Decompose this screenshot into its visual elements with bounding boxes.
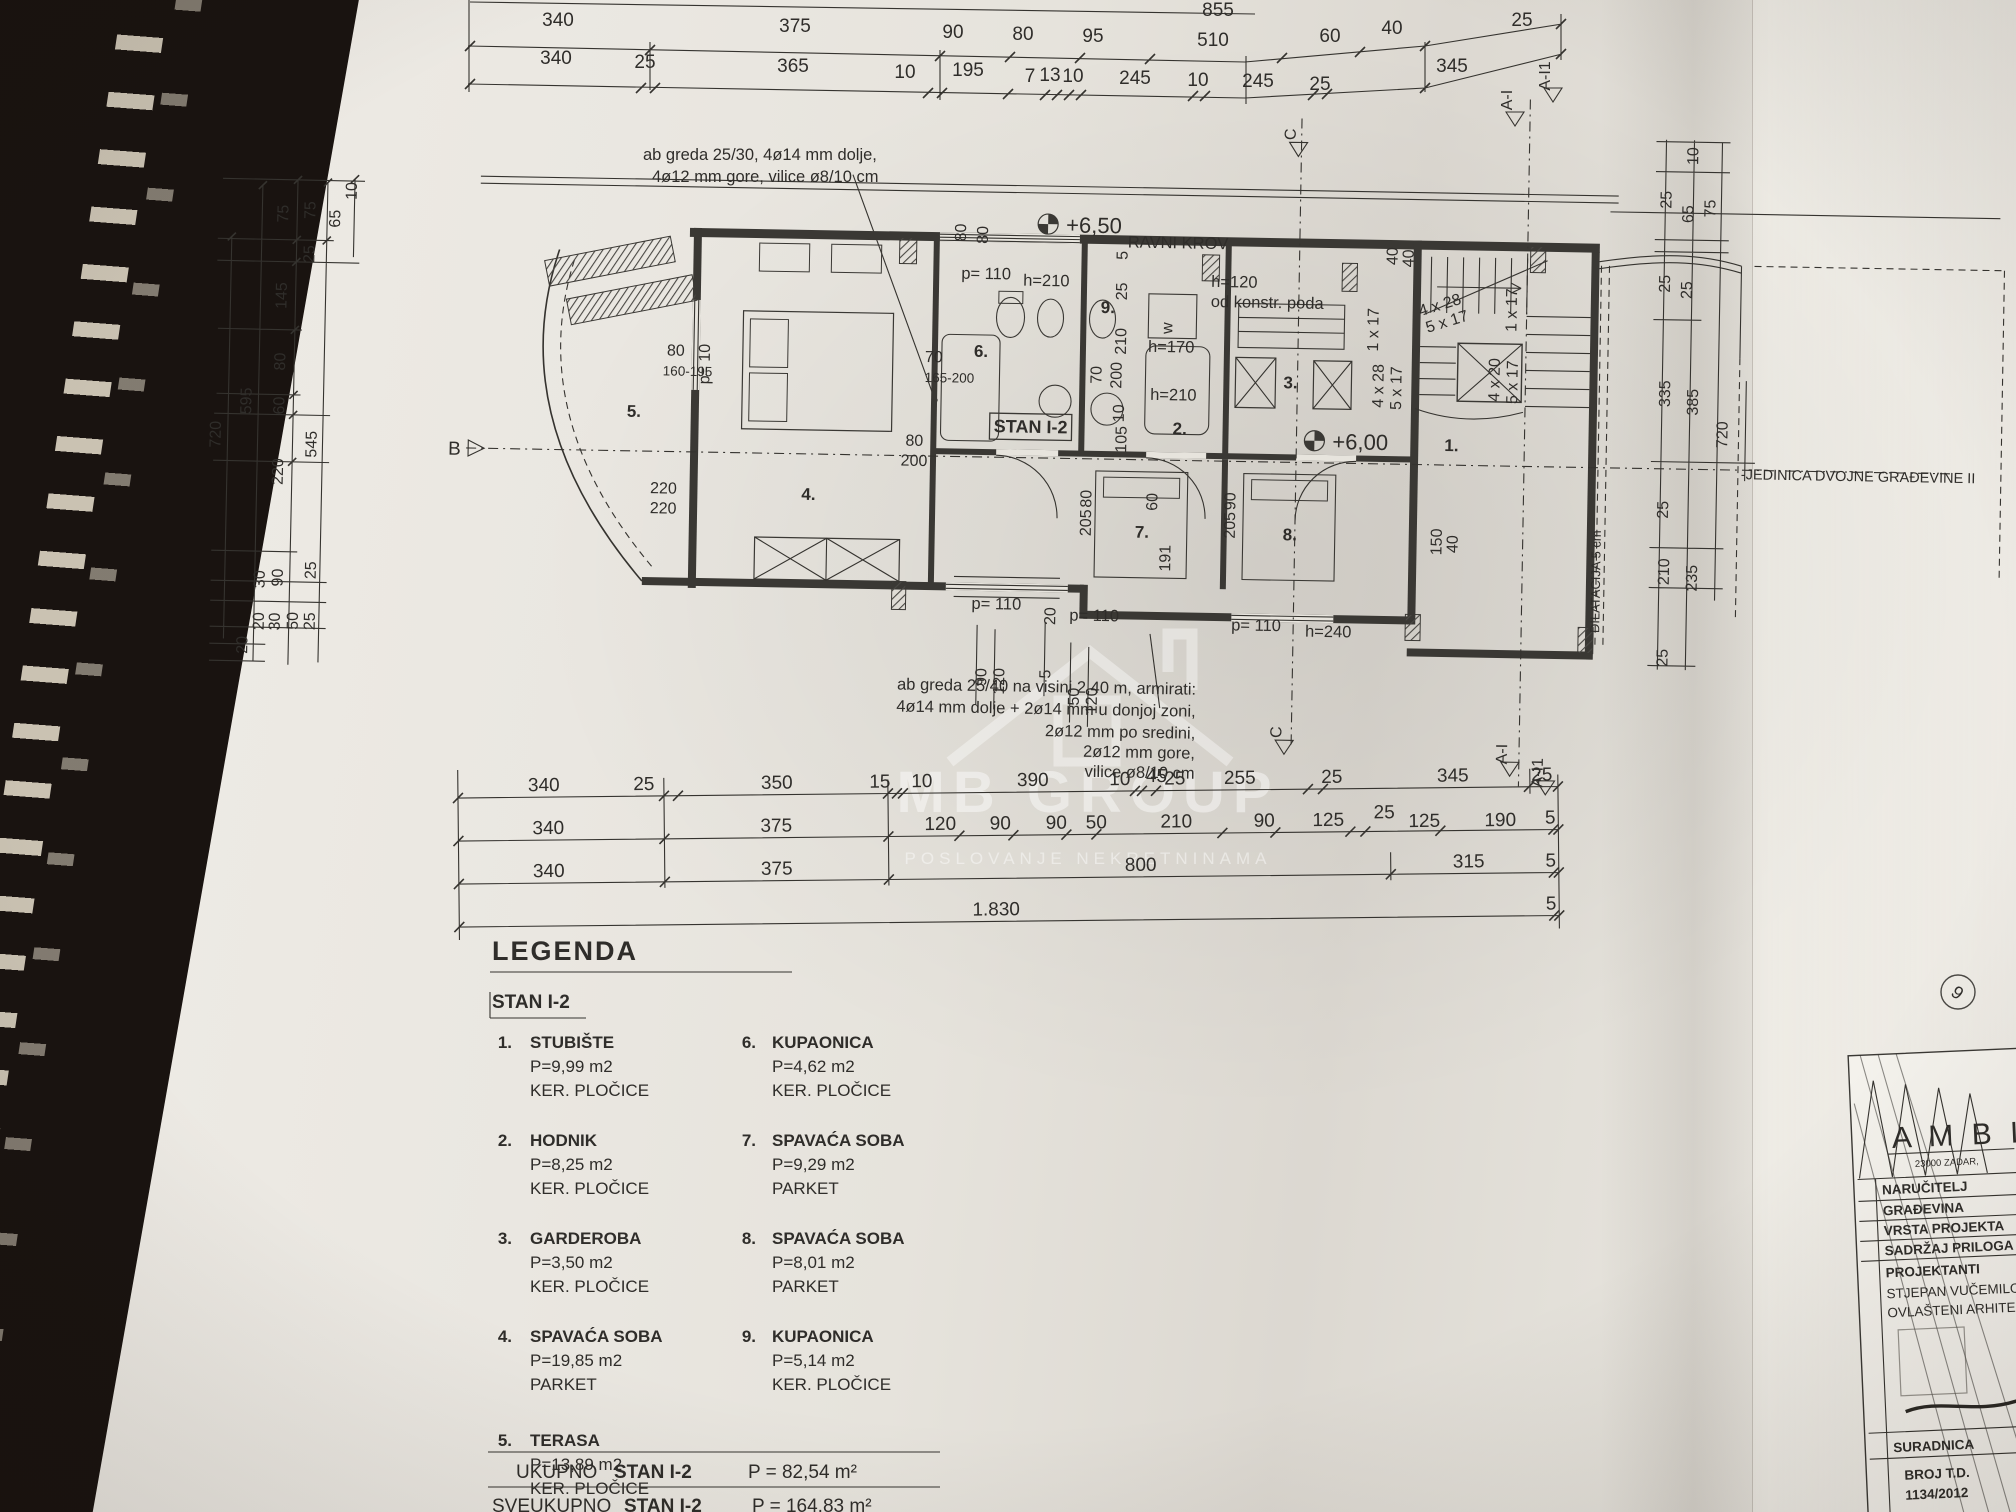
dim: 340 [542, 10, 574, 31]
legend-item-name: SPAVAĆA SOBA [772, 1131, 905, 1150]
dim: 90 [1222, 492, 1239, 510]
dim: 70 [925, 349, 943, 366]
bedroom4-furniture [739, 243, 905, 582]
legend-item-num: 2. [498, 1131, 512, 1150]
room-number-8: 8. [1283, 525, 1298, 544]
dim: 25 [1658, 191, 1675, 209]
dim: 220 [650, 480, 677, 497]
legend-item-finish: KER. PLOČICE [530, 1277, 649, 1296]
dim: 65 [327, 210, 344, 228]
dim: 15 [869, 771, 890, 792]
legend-item-name: KUPAONICA [772, 1327, 874, 1346]
dim: 80 [1012, 24, 1033, 45]
stair-text: 1 x 17 [1503, 288, 1521, 332]
dim: 80 [272, 352, 289, 370]
floor-plan: B C C A-I A-I1 +6,50 +6,00 1. 2. [442, 81, 2007, 803]
dim-line [470, 2, 1255, 14]
dim: 60 [1144, 493, 1161, 511]
door-label: h=240 [1305, 623, 1352, 642]
legend-item-finish: KER. PLOČICE [530, 1081, 649, 1100]
section-line-b [466, 448, 1954, 474]
legend-item-num: 9. [742, 1327, 756, 1346]
legend-item-finish: KER. PLOČICE [530, 1179, 649, 1198]
dim: 90 [270, 568, 287, 586]
leader-line [849, 175, 939, 400]
room-number-5: 5. [627, 402, 642, 421]
apartment-label: STAN I-2 [994, 416, 1068, 437]
dim-lines [209, 176, 365, 666]
dim: 80 [975, 226, 992, 244]
dim: 95 [1082, 26, 1103, 47]
partition [928, 236, 940, 584]
dim: 25 [302, 612, 319, 630]
total-value: P = 82,54 m² [748, 1462, 857, 1483]
dim: 25 [1164, 768, 1185, 789]
dim: 10 [344, 182, 361, 200]
dim: 125 [1408, 811, 1440, 832]
dim: 315 [1453, 851, 1485, 872]
legend-item-finish: KER. PLOČICE [772, 1375, 891, 1394]
parapet-label: h=120 [1211, 273, 1258, 292]
dim: 855 [1202, 0, 1234, 21]
dim: 25 [1654, 649, 1671, 667]
dim: 200 [1108, 362, 1125, 389]
legend-item-num: 1. [498, 1033, 512, 1052]
dim: 375 [779, 16, 811, 37]
dim: 340 [528, 775, 560, 796]
legend-item-area: P=19,85 m2 [530, 1351, 622, 1370]
dim: 345 [1437, 765, 1469, 786]
legend-item-num: 4. [498, 1327, 512, 1346]
dilatation-label: DILATACIJA 5 cm [1587, 530, 1604, 633]
parapet-label-2: od konstr. poda [1211, 293, 1325, 313]
dim: 70 [1088, 366, 1105, 384]
partition [1078, 239, 1088, 455]
legend-item-name: SPAVAĆA SOBA [530, 1327, 663, 1346]
dim: 75 [302, 201, 319, 219]
dim: 25 [1655, 501, 1672, 519]
dim: 205 [1078, 509, 1095, 536]
watermark-tagline: POSLOVANJE NEKRETNINAMA [905, 849, 1272, 868]
dim: 80 [953, 223, 970, 241]
door-swings [995, 455, 1356, 523]
dim: 25 [301, 245, 318, 263]
note-line: ab greda 25/40 na visini 2,40 m, armirat… [897, 676, 1196, 699]
dim: 375 [761, 859, 793, 880]
dim: 10 [894, 62, 915, 83]
legend-subtitle: STAN I-2 [492, 992, 570, 1013]
legend-item-name: HODNIK [530, 1131, 598, 1150]
section-label-c: C [1268, 726, 1285, 738]
room-number-4: 4. [801, 485, 816, 504]
legend-item-area: P=5,14 m2 [772, 1351, 855, 1370]
staircase [1415, 257, 1592, 422]
wall-stair-top [1414, 240, 1600, 252]
dim: 1.830 [972, 899, 1020, 920]
dim: 25 [1511, 10, 1532, 31]
note-line: 2ø12 mm po sredini, [1045, 722, 1196, 743]
parapet-dim: p= 10 [696, 344, 714, 385]
title-block: A M B I 23000 ZADAR, NARUČITELJ GRAĐEVIN… [1848, 1048, 2016, 1512]
wall-stair-west [1407, 240, 1422, 624]
legend-item-area: P=4,62 m2 [772, 1057, 855, 1076]
dim: 40 [1384, 247, 1401, 265]
dim: 80 [667, 342, 685, 359]
note-line: ab greda 25/30, 4ø14 mm dolje, [643, 146, 877, 164]
dim: 210 [1113, 328, 1130, 355]
section-line-a [1518, 99, 1530, 786]
stair-text: 4 x 20 [1486, 358, 1504, 402]
dim: 25 [633, 774, 654, 795]
window-height-label: h=210 [1023, 272, 1070, 291]
note-line: 4ø12 mm gore, vilice ø8/10 cm [652, 168, 879, 186]
total-value: P = 164,83 m² [752, 1496, 872, 1512]
dim: 10 [1109, 769, 1130, 790]
legend-item-finish: PARKET [530, 1375, 597, 1394]
legend-item-finish: KER. PLOČICE [772, 1081, 891, 1100]
dim: 245 [1119, 68, 1151, 89]
sheet-number-mark: 9 [1941, 975, 1975, 1009]
dim: 720 [207, 421, 225, 448]
dim: 190 [1484, 810, 1516, 831]
door-opening [946, 582, 1068, 592]
dim: 25 [1657, 275, 1674, 293]
dim-line [468, 54, 1562, 98]
dim: 210 [1656, 558, 1673, 585]
stair-text: 1 x 17 [1365, 308, 1383, 352]
legend-item-area: P=8,01 m2 [772, 1253, 855, 1272]
level-text: +6,50 [1066, 212, 1122, 238]
window-height-label: p= 110 [961, 265, 1011, 284]
dim: 150 [1428, 528, 1445, 555]
dim: 10 [1685, 147, 1702, 165]
dim: 10 [911, 771, 932, 792]
dim: 220 [650, 500, 677, 517]
section-label: A-I1 [1537, 61, 1554, 90]
legend-item-name: TERASA [530, 1431, 600, 1450]
dim: 191 [1157, 545, 1174, 572]
section-label-c: C [1283, 128, 1300, 140]
wall-stair-bottom [1407, 648, 1593, 659]
legend-item-num: 6. [742, 1033, 756, 1052]
section-label: A-I [1499, 90, 1516, 110]
door-range-label: 165-200 [925, 370, 975, 386]
legend-item-area: P=3,50 m2 [530, 1253, 613, 1272]
section-triangle-icon [1289, 142, 1307, 156]
dim: 25 [1374, 802, 1395, 823]
dim: 345 [1436, 56, 1468, 77]
washing-machine-label: w [1159, 322, 1176, 335]
dim: 720 [1714, 421, 1731, 448]
dim: 5 [1115, 251, 1132, 260]
total-name: STAN I-2 [624, 1496, 702, 1512]
dim: 10 [1062, 66, 1083, 87]
dim: 595 [238, 387, 256, 414]
dim: 195 [952, 60, 984, 81]
section-triangle-icon [1506, 112, 1524, 126]
dim: 10 [1187, 70, 1208, 91]
dim: 7 [1025, 66, 1036, 87]
section-label-b: B [448, 439, 461, 460]
legend-item-finish: PARKET [772, 1277, 839, 1296]
room-number-7: 7. [1135, 523, 1150, 542]
dim: 90 [1046, 813, 1067, 834]
section-label-a: A-I [1494, 744, 1511, 765]
sheet-number: 9 [1947, 982, 1967, 1004]
dim: 40 [1381, 18, 1402, 39]
legend-item-area: P=9,29 m2 [772, 1155, 855, 1174]
dim: 255 [1224, 768, 1256, 789]
dim: 30 [251, 570, 268, 588]
neighbor-dashed-outline [1735, 266, 2004, 623]
legend-title: LEGENDA [492, 936, 638, 966]
top-dimension-chains: 855 340 375 90 80 95 510 60 40 25 340 25… [465, 0, 1566, 126]
tb-broj-val: 1134/2012 [1905, 1485, 1969, 1503]
garderoba-wardrobes [1235, 303, 1353, 409]
dim: 5 [1546, 894, 1557, 915]
legend-item-name: SPAVAĆA SOBA [772, 1229, 905, 1248]
floor-plan-drawing: MB GROUP POSLOVANJE NEKRETNINAMA 855 340… [0, 0, 2016, 1512]
dim: 25 [1679, 281, 1696, 299]
dim: 75 [1702, 199, 1719, 217]
left-dimension-chains: 10 65 75 75 25 145 80 60 595 720 545 220… [203, 172, 365, 666]
dim: 200 [900, 453, 927, 470]
dim: 125 [1312, 810, 1344, 831]
legend-item-finish: PARKET [772, 1179, 839, 1198]
dim: 50 [285, 612, 302, 630]
legend-item-name: GARDEROBA [530, 1229, 641, 1248]
door-opening [1296, 454, 1356, 461]
unit2-label: -JEDINICA DVOJNE GRAĐEVINE II [1741, 467, 1976, 487]
dim: 25 [303, 561, 320, 579]
dim: 25 [1531, 765, 1552, 786]
door-label: p= 110 [1231, 616, 1281, 635]
legend-item-num: 8. [742, 1229, 756, 1248]
dim: 13 [1039, 65, 1060, 86]
level-text: +6,00 [1332, 429, 1388, 455]
note-line: 2ø12 mm gore, [1083, 743, 1195, 763]
dim: 340 [532, 818, 564, 839]
dim: 390 [1017, 770, 1049, 791]
legend-item-name: KUPAONICA [772, 1033, 874, 1052]
dim: 545 [303, 431, 321, 458]
room-number-1: 1. [1444, 436, 1459, 455]
note-line: 4ø14 mm dolje + 2ø14 mm u donjoj zoni, [896, 697, 1196, 720]
door-opening [1146, 452, 1206, 459]
dim: 510 [1197, 30, 1229, 51]
door-label: p= 110 [971, 595, 1021, 614]
dim: 40 [1400, 249, 1417, 267]
legend-item-num: 5. [498, 1431, 512, 1450]
total-name: STAN I-2 [614, 1462, 692, 1483]
dim: 20 [234, 636, 251, 654]
dim: 60 [1319, 26, 1340, 47]
dim: 10 [1111, 404, 1128, 422]
dim: 340 [533, 861, 565, 882]
dim: 5 [1545, 808, 1556, 829]
stair-text: 4 x 28 [1370, 364, 1388, 408]
door-opening [996, 449, 1058, 456]
dim: 5 [1545, 851, 1556, 872]
room-number-2: 2. [1172, 419, 1187, 438]
door-height-label: h=170 [1148, 338, 1195, 357]
dim: 210 [1160, 811, 1192, 832]
legend: LEGENDA STAN I-2 1. STUBIŠTE P=9,99 m2 K… [488, 936, 940, 1512]
tb-broj-td: BROJ T.D. [1904, 1465, 1970, 1483]
dim: 25 [634, 52, 655, 73]
dim: 80 [1078, 490, 1095, 508]
dim: 30 [267, 612, 284, 630]
legend-item-num: 7. [742, 1131, 756, 1150]
dim: 220 [270, 458, 288, 485]
dim: 105 [1113, 426, 1130, 453]
flat-roof-label: RAVNI KROV [1128, 233, 1229, 253]
dim: 25 [1114, 282, 1131, 300]
room-number-6: 6. [974, 342, 989, 361]
dim: 335 [1657, 380, 1674, 407]
dim: 375 [760, 816, 792, 837]
total-label: UKUPNO [516, 1462, 597, 1483]
door-label: p= 110 [1069, 607, 1119, 626]
dim: 350 [761, 773, 793, 794]
dim: 65 [1680, 205, 1697, 223]
dim: 340 [540, 48, 572, 69]
dim: 385 [1685, 389, 1702, 416]
dim: 235 [1684, 565, 1701, 592]
legend-item-name: STUBIŠTE [530, 1033, 614, 1052]
door-height-label: h=210 [1150, 386, 1197, 405]
stair-text: 5 x 17 [1504, 360, 1522, 404]
legend-item-num: 3. [498, 1229, 512, 1248]
level-mark-600: +6,00 [1304, 429, 1388, 455]
dim: 90 [1254, 810, 1275, 831]
photo-of-floor-plan: MB GROUP POSLOVANJE NEKRETNINAMA 855 340… [0, 0, 2016, 1512]
legend-item-area: P=8,25 m2 [530, 1155, 613, 1174]
dim: 60 [271, 396, 288, 414]
right-dimension-chains: 10 25 65 75 25 25 335 385 720 25 210 235… [1647, 140, 1760, 672]
dim: 75 [275, 204, 292, 222]
dim: 365 [777, 56, 809, 77]
section-triangle-icon [1275, 740, 1293, 754]
dim: 145 [273, 282, 291, 309]
dim: 245 [1242, 71, 1274, 92]
dim: 25 [1321, 767, 1342, 788]
legend-items: 1. STUBIŠTE P=9,99 m2 KER. PLOČICE 2. HO… [498, 1033, 905, 1498]
dim: 40 [1444, 535, 1461, 553]
dim: 25 [1309, 74, 1330, 95]
dim: 120 [924, 814, 956, 835]
dim: 90 [990, 813, 1011, 834]
terrace-planters [545, 234, 697, 328]
dim: 50 [1086, 812, 1107, 833]
dim: 80 [905, 433, 923, 450]
dim: 90 [942, 22, 963, 43]
stair-text: 5 x 17 [1388, 366, 1406, 410]
dim: 800 [1125, 855, 1157, 876]
legend-item-area: P=9,99 m2 [530, 1057, 613, 1076]
total-label: SVEUKUPNO [492, 1496, 611, 1512]
dim: 20 [251, 612, 268, 630]
section-line-c [1291, 118, 1302, 748]
top-rebar-note: ab greda 25/30, 4ø14 mm dolje, 4ø12 mm g… [643, 146, 879, 186]
room-number-3: 3. [1283, 373, 1298, 392]
dim: 205 [1222, 512, 1239, 539]
level-mark-650: +6,50 [1038, 212, 1122, 238]
